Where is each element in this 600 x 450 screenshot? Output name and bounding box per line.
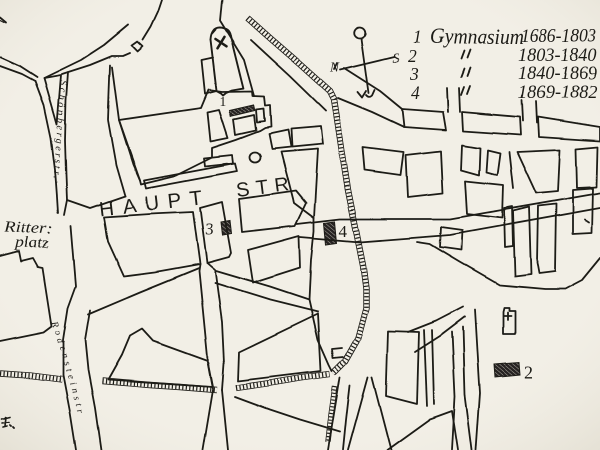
svg-text:N: N xyxy=(329,60,340,75)
svg-text:4: 4 xyxy=(411,83,420,103)
svg-text:platz: platz xyxy=(14,234,50,252)
svg-text:S: S xyxy=(392,51,400,67)
svg-text:2: 2 xyxy=(524,363,533,383)
svg-text:4: 4 xyxy=(339,222,348,241)
svg-text:1840-1869: 1840-1869 xyxy=(518,63,597,84)
svg-text:1: 1 xyxy=(220,94,227,109)
svg-text:Gymnasium: Gymnasium xyxy=(430,24,524,49)
svg-text:1: 1 xyxy=(413,27,422,47)
svg-text:1869-1882: 1869-1882 xyxy=(518,82,597,103)
svg-text:3: 3 xyxy=(205,220,214,239)
svg-text:2: 2 xyxy=(408,46,417,66)
svg-text:1686-1803: 1686-1803 xyxy=(521,26,597,47)
svg-text:3: 3 xyxy=(409,64,419,84)
